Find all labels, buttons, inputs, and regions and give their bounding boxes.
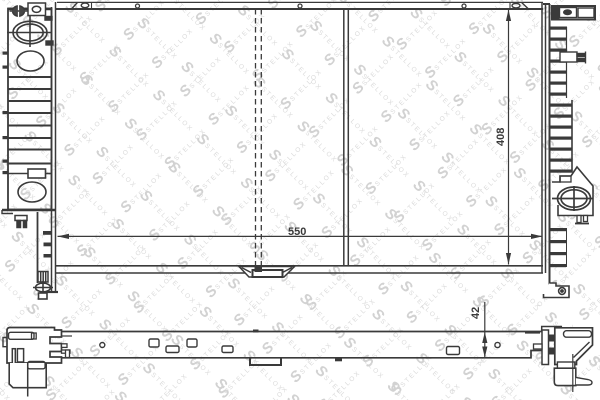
svg-text:42: 42: [470, 307, 482, 319]
svg-text:408: 408: [495, 128, 507, 146]
svg-text:550: 550: [288, 226, 306, 238]
